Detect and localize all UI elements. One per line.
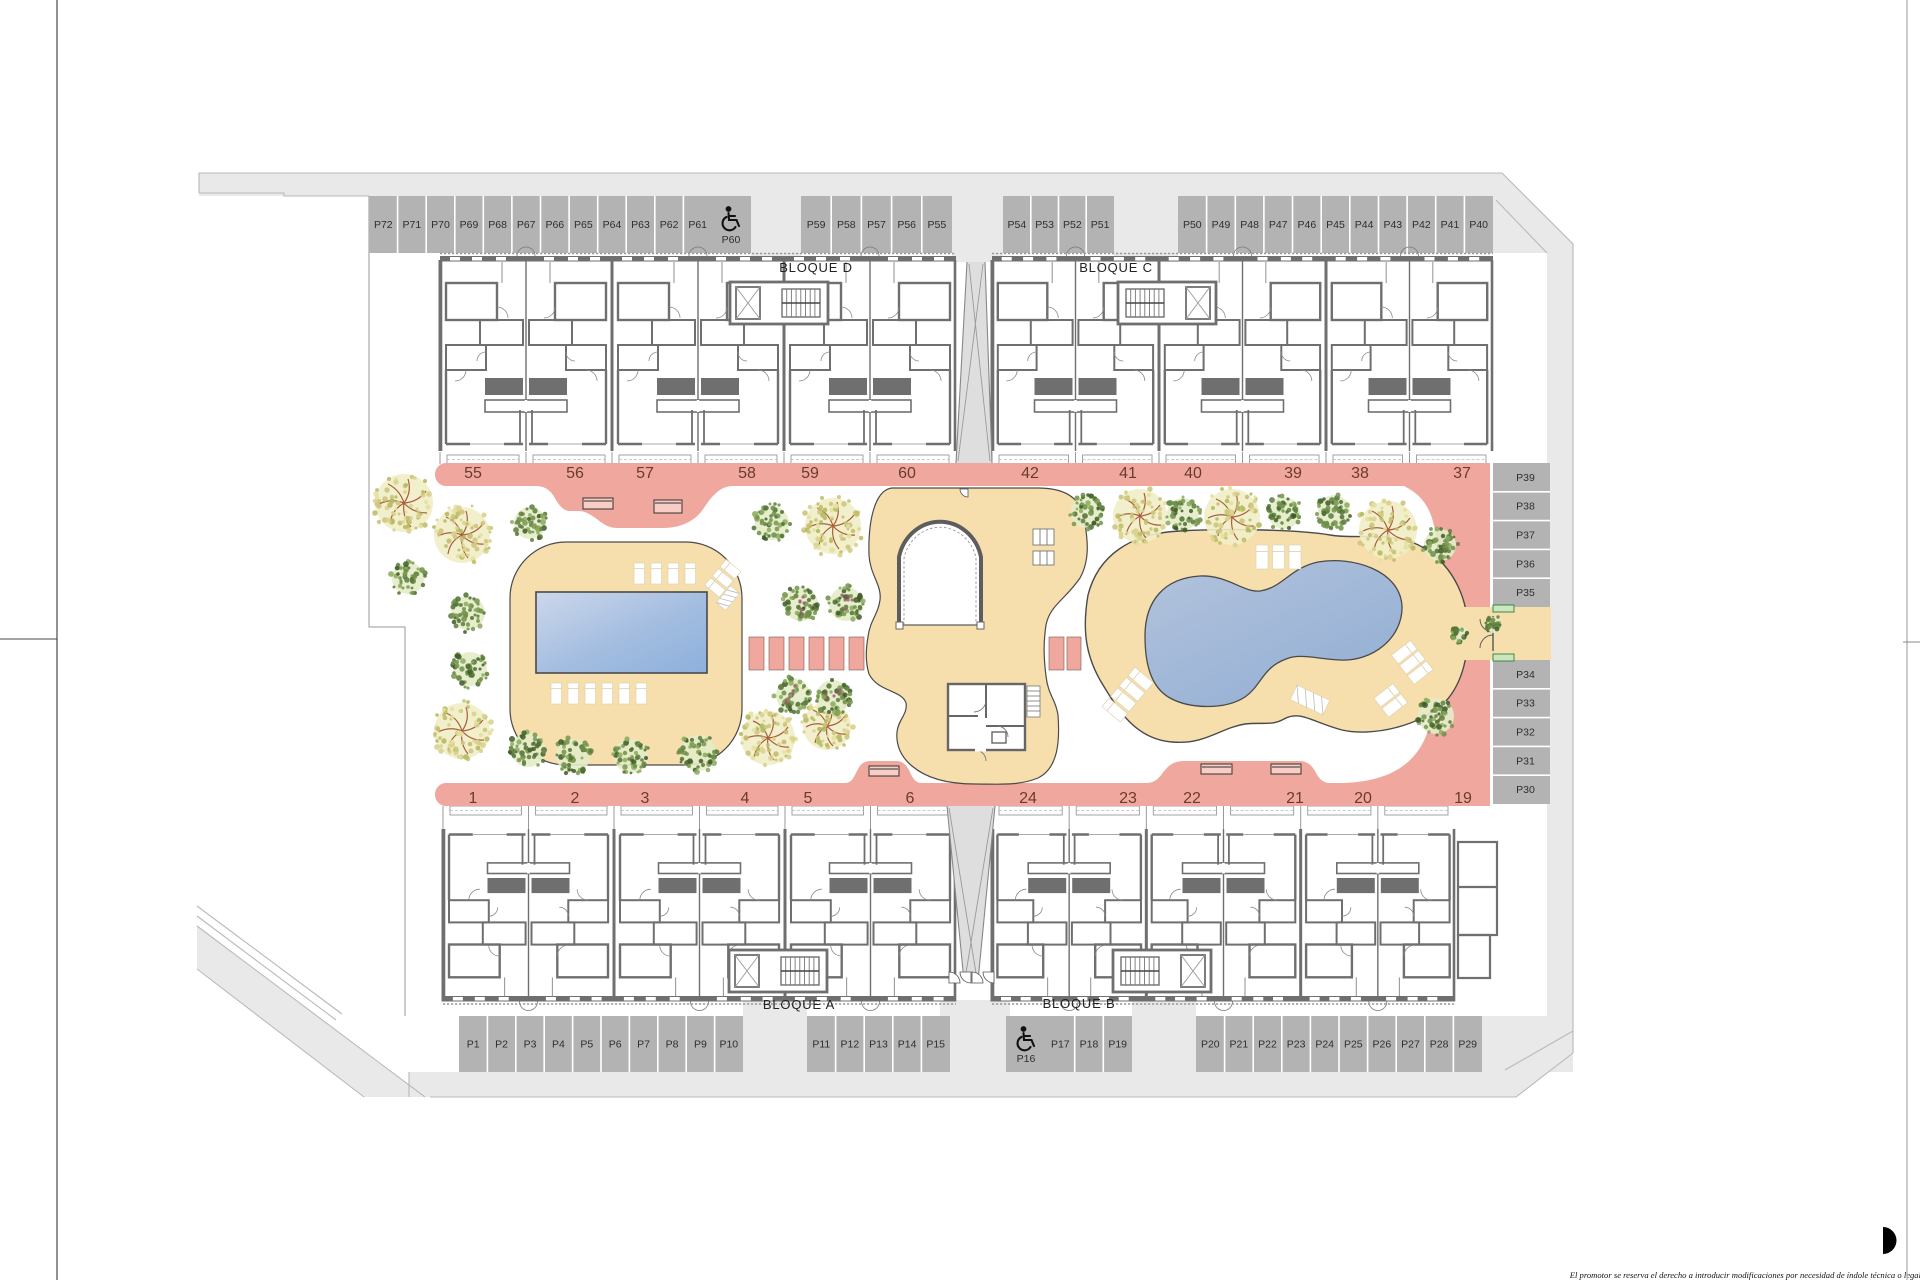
svg-text:P67: P67 [517, 219, 536, 231]
svg-text:P48: P48 [1240, 219, 1259, 231]
svg-text:P39: P39 [1516, 472, 1535, 484]
svg-text:P17: P17 [1051, 1039, 1070, 1051]
svg-text:P40: P40 [1469, 219, 1488, 231]
svg-text:6: 6 [906, 790, 915, 807]
svg-text:P7: P7 [637, 1039, 650, 1051]
svg-text:P25: P25 [1344, 1039, 1363, 1051]
svg-text:P35: P35 [1516, 587, 1535, 599]
svg-text:23: 23 [1119, 790, 1137, 807]
svg-text:BLOQUE B: BLOQUE B [1043, 996, 1116, 1011]
svg-text:P49: P49 [1212, 219, 1231, 231]
svg-text:P33: P33 [1516, 698, 1535, 710]
svg-text:P12: P12 [841, 1039, 860, 1051]
svg-text:P51: P51 [1091, 219, 1110, 231]
svg-text:P28: P28 [1430, 1039, 1449, 1051]
svg-text:21: 21 [1286, 790, 1304, 807]
svg-text:P45: P45 [1326, 219, 1345, 231]
svg-text:BLOQUE C: BLOQUE C [1079, 260, 1153, 275]
svg-text:P9: P9 [694, 1039, 707, 1051]
svg-text:P44: P44 [1355, 219, 1374, 231]
svg-text:1: 1 [469, 790, 478, 807]
svg-text:24: 24 [1019, 790, 1037, 807]
svg-text:P22: P22 [1258, 1039, 1277, 1051]
svg-text:P2: P2 [495, 1039, 508, 1051]
svg-text:P62: P62 [660, 219, 679, 231]
svg-text:P6: P6 [609, 1039, 622, 1051]
svg-text:P1: P1 [467, 1039, 480, 1051]
svg-text:P21: P21 [1230, 1039, 1249, 1051]
svg-text:P46: P46 [1298, 219, 1317, 231]
svg-text:P31: P31 [1516, 755, 1535, 767]
svg-text:38: 38 [1351, 465, 1369, 482]
svg-text:40: 40 [1184, 465, 1202, 482]
svg-text:P57: P57 [867, 219, 886, 231]
svg-text:P26: P26 [1373, 1039, 1392, 1051]
svg-text:P15: P15 [926, 1039, 945, 1051]
svg-text:P60: P60 [722, 234, 741, 246]
svg-text:P66: P66 [545, 219, 564, 231]
svg-text:P50: P50 [1183, 219, 1202, 231]
svg-text:41: 41 [1119, 465, 1137, 482]
svg-text:P36: P36 [1516, 558, 1535, 570]
svg-text:22: 22 [1183, 790, 1201, 807]
svg-text:58: 58 [738, 465, 756, 482]
svg-text:P19: P19 [1108, 1039, 1127, 1051]
svg-text:39: 39 [1284, 465, 1302, 482]
svg-text:P4: P4 [552, 1039, 565, 1051]
svg-text:57: 57 [636, 465, 654, 482]
svg-text:55: 55 [464, 465, 482, 482]
svg-text:P20: P20 [1201, 1039, 1220, 1051]
svg-text:P23: P23 [1287, 1039, 1306, 1051]
svg-text:59: 59 [801, 465, 819, 482]
svg-text:El promotor se reserva el dere: El promotor se reserva el derecho a intr… [1569, 1270, 1920, 1280]
svg-text:P71: P71 [403, 219, 422, 231]
svg-text:P10: P10 [719, 1039, 738, 1051]
svg-text:42: 42 [1021, 465, 1039, 482]
svg-text:P68: P68 [488, 219, 507, 231]
svg-text:37: 37 [1453, 465, 1471, 482]
svg-text:3: 3 [641, 790, 650, 807]
svg-text:P53: P53 [1035, 219, 1054, 231]
svg-text:P3: P3 [524, 1039, 537, 1051]
svg-text:P37: P37 [1516, 530, 1535, 542]
svg-text:P43: P43 [1383, 219, 1402, 231]
svg-text:P18: P18 [1080, 1039, 1099, 1051]
svg-text:P58: P58 [837, 219, 856, 231]
svg-text:BLOQUE D: BLOQUE D [779, 260, 853, 275]
svg-text:5: 5 [804, 790, 813, 807]
svg-text:P27: P27 [1401, 1039, 1420, 1051]
svg-text:P72: P72 [374, 219, 393, 231]
svg-text:P32: P32 [1516, 727, 1535, 739]
svg-text:P64: P64 [603, 219, 622, 231]
svg-text:P14: P14 [898, 1039, 917, 1051]
svg-text:P65: P65 [574, 219, 593, 231]
svg-text:4: 4 [741, 790, 750, 807]
svg-text:BLOQUE A: BLOQUE A [763, 997, 835, 1012]
svg-text:P70: P70 [431, 219, 450, 231]
svg-text:P52: P52 [1063, 219, 1082, 231]
svg-text:P11: P11 [812, 1039, 830, 1051]
svg-text:P8: P8 [666, 1039, 679, 1051]
svg-text:P63: P63 [631, 219, 650, 231]
svg-text:P41: P41 [1441, 219, 1460, 231]
svg-text:P54: P54 [1008, 219, 1027, 231]
svg-text:P61: P61 [688, 219, 707, 231]
svg-text:P30: P30 [1516, 784, 1535, 796]
svg-text:2: 2 [571, 790, 580, 807]
svg-text:P13: P13 [869, 1039, 888, 1051]
svg-text:P34: P34 [1516, 669, 1535, 681]
svg-text:20: 20 [1354, 790, 1372, 807]
svg-text:56: 56 [566, 465, 584, 482]
svg-text:P16: P16 [1017, 1053, 1036, 1065]
svg-text:P47: P47 [1269, 219, 1288, 231]
svg-text:P5: P5 [580, 1039, 593, 1051]
svg-text:P59: P59 [807, 219, 826, 231]
svg-text:P55: P55 [928, 219, 947, 231]
svg-text:P29: P29 [1458, 1039, 1477, 1051]
svg-text:P56: P56 [897, 219, 916, 231]
svg-text:P69: P69 [460, 219, 479, 231]
svg-text:19: 19 [1454, 790, 1472, 807]
svg-text:P42: P42 [1412, 219, 1431, 231]
svg-text:P24: P24 [1315, 1039, 1334, 1051]
svg-text:60: 60 [898, 465, 916, 482]
svg-text:P38: P38 [1516, 501, 1535, 513]
